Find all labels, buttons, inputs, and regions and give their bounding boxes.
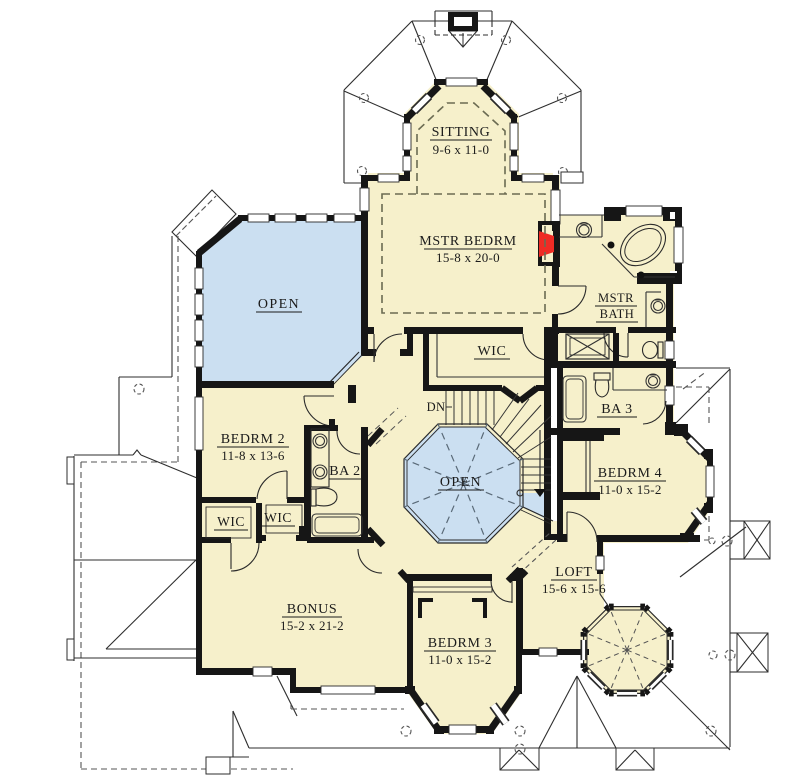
svg-text:WIC: WIC <box>217 514 245 529</box>
svg-text:BATH: BATH <box>600 307 635 321</box>
svg-text:BEDRM 4: BEDRM 4 <box>598 466 663 481</box>
svg-text:BONUS: BONUS <box>287 602 337 617</box>
svg-text:BA 3: BA 3 <box>601 402 633 417</box>
svg-text:MSTR BEDRM: MSTR BEDRM <box>419 234 516 249</box>
svg-text:DN: DN <box>427 400 446 414</box>
svg-text:MSTR: MSTR <box>598 291 634 305</box>
svg-text:15-8 x 20-0: 15-8 x 20-0 <box>436 250 500 265</box>
svg-text:BEDRM 3: BEDRM 3 <box>428 636 493 651</box>
svg-text:15-2 x 21-2: 15-2 x 21-2 <box>280 618 344 633</box>
svg-text:11-8 x 13-6: 11-8 x 13-6 <box>221 448 285 463</box>
svg-text:LOFT: LOFT <box>555 565 592 580</box>
svg-text:15-6 x 15-6: 15-6 x 15-6 <box>542 581 606 596</box>
svg-text:BEDRM 2: BEDRM 2 <box>221 432 286 447</box>
svg-text:BA 2: BA 2 <box>329 464 361 479</box>
svg-text:OPEN: OPEN <box>440 475 482 490</box>
svg-text:WIC: WIC <box>264 510 292 525</box>
svg-text:OPEN: OPEN <box>258 297 300 312</box>
svg-text:WIC: WIC <box>477 344 506 359</box>
svg-text:11-0 x 15-2: 11-0 x 15-2 <box>598 482 661 497</box>
svg-text:SITTING: SITTING <box>432 125 491 140</box>
svg-text:11-0 x 15-2: 11-0 x 15-2 <box>428 652 491 667</box>
svg-text:9-6 x 11-0: 9-6 x 11-0 <box>433 142 490 157</box>
